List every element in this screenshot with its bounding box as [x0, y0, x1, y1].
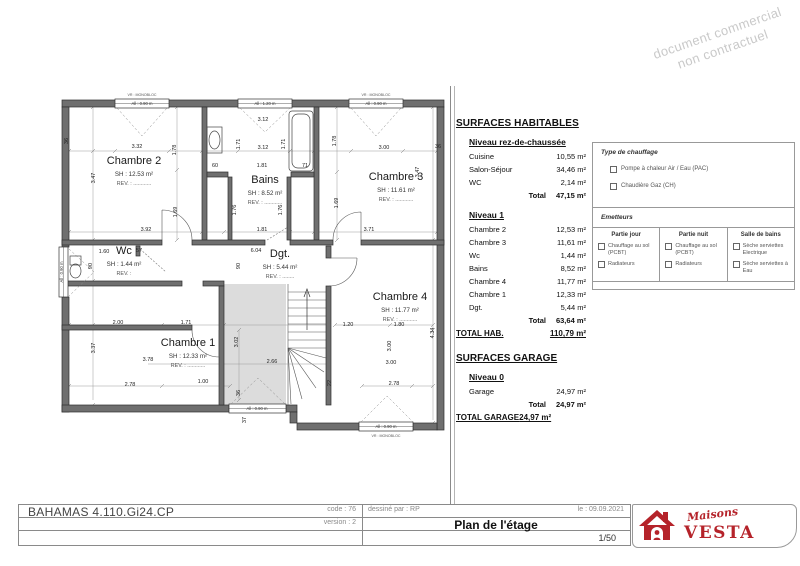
dimension-label: 1.76: [278, 205, 284, 216]
room-area-label: SH : 11.77 m²: [381, 307, 419, 314]
surface-label: Wc: [469, 249, 480, 262]
project-code: code : 76: [250, 506, 356, 513]
dimension-label: 3.71: [364, 227, 375, 233]
room-name-label: Dgt.: [270, 248, 290, 260]
surface-value: 8,52 m²: [561, 262, 586, 275]
dimension-label: 3.92: [141, 227, 152, 233]
emitters-title: Emetteurs: [601, 214, 794, 221]
dimension-label: 2.78: [389, 381, 400, 387]
emitter-option-label: Sèche serviettes Electrique: [743, 243, 791, 256]
bathtub-icon: [289, 111, 313, 171]
surface-value: 1,44 m²: [561, 249, 586, 262]
surface-label: Chambre 4: [469, 275, 506, 288]
dimension-label: 36: [435, 144, 441, 150]
project-version: version : 2: [250, 519, 356, 526]
surface-row: Cuisine10,55 m²: [469, 150, 586, 163]
dimension-label: 1.78: [172, 145, 178, 156]
project-name: BAHAMAS 4.110.Gi24.CP: [28, 505, 174, 519]
checkbox-icon[interactable]: [665, 243, 672, 250]
plan-frame-line-2: [454, 86, 455, 504]
dimension-label: 36: [64, 138, 70, 144]
dimension-label: 1.81: [257, 227, 268, 233]
total-hab-value: 110,79 m²: [550, 327, 586, 341]
garage-heading: Niveau 0: [469, 372, 586, 382]
emitters-column-jour: Partie jour Chauffage au sol (PCBT) Radi…: [593, 228, 659, 281]
brand-name: VESTA: [683, 523, 755, 543]
window-type-label: VR : MONOBLOC: [372, 434, 401, 438]
dimension-label: 57: [136, 248, 142, 254]
emitters-column-bains: Salle de bains Sèche serviettes Electriq…: [727, 228, 794, 281]
surface-row: Chambre 212,53 m²: [469, 223, 586, 236]
garage-total-value: 24,97 m²: [556, 398, 586, 411]
room-name-label: Chambre 2: [107, 155, 161, 167]
drawing-scale: 1/50: [500, 533, 616, 543]
surface-label: WC: [469, 176, 482, 189]
total-label: Total: [529, 189, 546, 202]
room-area-label: SH : 12.53 m²: [115, 171, 153, 178]
room-rev-label: REV. : ........: [266, 274, 295, 280]
surface-value: 5,44 m²: [561, 301, 586, 314]
room-area-label: SH : 12.33 m²: [169, 353, 207, 360]
dimension-label: 1.76: [232, 205, 238, 216]
surface-value: 12,53 m²: [556, 223, 586, 236]
window-allege-label: All : 0.90 m: [247, 406, 268, 411]
checkbox-icon[interactable]: [598, 261, 605, 268]
surface-value: 10,55 m²: [556, 150, 586, 163]
emitters-column-header: Salle de bains: [731, 232, 791, 238]
emitter-option-label: Chauffage au sol (PCBT): [608, 243, 656, 256]
total-garage-label: TOTAL GARAGE: [456, 411, 519, 425]
total-label: Total: [529, 314, 546, 327]
emitter-option: Sèche serviettes Electrique: [733, 243, 791, 256]
window-allege-label: All : 0.90 m: [59, 261, 64, 282]
checkbox-icon[interactable]: [665, 261, 672, 268]
checkbox-icon[interactable]: [598, 243, 605, 250]
surface-row: Bains8,52 m²: [469, 262, 586, 275]
surface-label: Dgt.: [469, 301, 483, 314]
surface-label: Bains: [469, 262, 488, 275]
window-type-label: VR : MONOBLOC: [128, 93, 157, 97]
titleblock-line: [18, 504, 19, 546]
dimension-label: 60: [212, 163, 218, 169]
surface-label: Chambre 2: [469, 223, 506, 236]
checkbox-icon[interactable]: [733, 243, 740, 250]
n1-total-row: Total63,64 m²: [456, 314, 586, 327]
room-area-label: SH : 5.44 m²: [263, 264, 298, 271]
rdc-total-row: Total47,15 m²: [456, 189, 586, 202]
dimension-label: 36: [236, 390, 242, 396]
sheet-title: Plan de l'étage: [362, 518, 630, 532]
dimension-label: 3.37: [91, 343, 97, 354]
rdc-total-value: 47,15 m²: [556, 189, 586, 202]
checkbox-icon[interactable]: [610, 166, 617, 173]
room-name-label: Wc: [116, 245, 132, 257]
heating-option-label: Chaudière Gaz (CH): [621, 183, 676, 190]
dimension-label: 22: [327, 380, 333, 386]
dimension-label: 1.69: [334, 198, 340, 209]
emitters-column-nuit: Partie nuit Chauffage au sol (PCBT) Radi…: [659, 228, 726, 281]
garage-total-row: Total24,97 m²: [456, 398, 586, 411]
window-allege-label: All : 1.20 m: [255, 101, 276, 106]
surface-value: 24,97 m²: [556, 385, 586, 398]
surfaces-title: SURFACES HABITABLES: [456, 118, 586, 129]
room-name-label: Chambre 1: [161, 337, 215, 349]
surface-row: Garage24,97 m²: [469, 385, 586, 398]
surface-row: Chambre 112,33 m²: [469, 288, 586, 301]
plan-frame-line: [450, 86, 451, 504]
emitter-option-label: Sèche serviettes à Eau: [743, 261, 791, 274]
emitter-option: Chauffage au sol (PCBT): [665, 243, 723, 256]
room-rev-label: REV. : ............: [171, 363, 206, 369]
dimension-label: 1.81: [257, 163, 268, 169]
dimension-label: 1.60: [99, 249, 110, 255]
total-hab-label: TOTAL HAB.: [456, 327, 504, 341]
rdc-heading: Niveau rez-de-chaussée: [469, 137, 586, 147]
drawing-date: le : 09.09.2021: [500, 506, 624, 513]
dimension-label: 1.80: [394, 322, 405, 328]
dimension-label: 1.00: [198, 379, 209, 385]
checkbox-icon[interactable]: [733, 261, 740, 268]
emitter-option: Sèche serviettes à Eau: [733, 261, 791, 274]
window-allege-label: All : 0.90 m: [366, 101, 387, 106]
emitter-option-label: Radiateurs: [608, 261, 635, 268]
dimension-label: 3.00: [379, 145, 390, 151]
dimension-label: 1.71: [281, 139, 287, 150]
total-hab-row: TOTAL HAB.110,79 m²: [456, 327, 586, 341]
room-rev-label: REV. : ............: [379, 197, 414, 203]
emitter-option-label: Chauffage au sol (PCBT): [675, 243, 723, 256]
emitters-column-header: Partie jour: [596, 232, 656, 238]
dimension-label: 3.47: [91, 173, 97, 184]
window-allege-label: All : 0.90 m: [376, 424, 397, 429]
heating-option: Pompe à chaleur Air / Eau (PAC): [610, 166, 794, 173]
dimension-label: 3.12: [258, 145, 269, 151]
dimension-label: 1.71: [236, 139, 242, 150]
n1-total-value: 63,64 m²: [556, 314, 586, 327]
dimension-label: 3.78: [143, 357, 154, 363]
dimension-label: 90: [88, 263, 94, 269]
room-area-label: SH : 1.44 m²: [107, 261, 142, 268]
window-allege-label: All : 0.90 m: [132, 101, 153, 106]
surface-value: 11,61 m²: [557, 236, 586, 249]
dimension-label: 1.78: [332, 136, 338, 147]
titleblock-line: [630, 504, 631, 546]
dimension-label: 2.66: [267, 359, 278, 365]
dimension-label: 1.20: [343, 322, 354, 328]
surface-row: Dgt.5,44 m²: [469, 301, 586, 314]
dimension-label: 3.47: [415, 167, 421, 178]
surface-value: 12,33 m²: [556, 288, 586, 301]
emitter-option: Radiateurs: [598, 261, 656, 268]
titleblock-line: [18, 545, 630, 546]
emitters-column-header: Partie nuit: [663, 232, 723, 238]
emitters-section: Emetteurs Partie jour Chauffage au sol (…: [593, 207, 794, 289]
room-name-label: Bains: [251, 174, 279, 186]
surface-label: Salon-Séjour: [469, 163, 512, 176]
heating-option-label: Pompe à chaleur Air / Eau (PAC): [621, 166, 708, 173]
room-rev-label: REV. :: [116, 271, 131, 277]
emitters-table: Partie jour Chauffage au sol (PCBT) Radi…: [593, 227, 794, 282]
dimension-label: 90: [236, 263, 242, 269]
garage-title: SURFACES GARAGE: [456, 353, 586, 364]
surface-row: Chambre 411,77 m²: [469, 275, 586, 288]
surface-label: Chambre 3: [469, 236, 506, 249]
dimension-label: 3.00: [387, 341, 393, 352]
surface-row: WC2,14 m²: [469, 176, 586, 189]
brand-script: Maisons: [685, 506, 738, 524]
dimension-label: 3.12: [258, 117, 269, 123]
n1-heading: Niveau 1: [469, 210, 586, 220]
surface-label: Cuisine: [469, 150, 494, 163]
heating-legend: Type de chauffage Pompe à chaleur Air / …: [592, 142, 795, 290]
surface-label: Chambre 1: [469, 288, 506, 301]
heating-option: Chaudière Gaz (CH): [610, 183, 794, 190]
surface-row: Chambre 311,61 m²: [469, 236, 586, 249]
dimension-label: 3.32: [132, 144, 143, 150]
surfaces-panel: SURFACES HABITABLES Niveau rez-de-chauss…: [456, 118, 586, 425]
vesta-logo: Maisons VESTA: [632, 504, 797, 548]
dimension-label: 2.00: [113, 320, 124, 326]
dimension-label: 2.78: [125, 382, 136, 388]
total-garage-value: 24,97 m²: [519, 411, 551, 425]
room-area-label: SH : 11.61 m²: [377, 187, 415, 194]
surface-value: 34,46 m²: [556, 163, 586, 176]
checkbox-icon[interactable]: [610, 183, 617, 190]
dimension-label: 37: [242, 417, 248, 423]
emitter-option: Chauffage au sol (PCBT): [598, 243, 656, 256]
room-rev-label: REV. : ............: [117, 181, 152, 187]
surface-value: 11,77 m²: [557, 275, 586, 288]
drawn-by: dessiné par : RP: [368, 506, 420, 513]
dimension-label: 1.71: [181, 320, 192, 326]
heating-type-section: Type de chauffage Pompe à chaleur Air / …: [593, 143, 794, 206]
heating-type-title: Type de chauffage: [601, 149, 794, 156]
dimension-label: 3.00: [386, 360, 397, 366]
dimension-label: 4.34: [430, 328, 436, 339]
emitter-option-label: Radiateurs: [675, 261, 702, 268]
dimension-label: 3.02: [234, 337, 240, 348]
dimension-label: 71: [302, 163, 308, 169]
surface-row: Wc1,44 m²: [469, 249, 586, 262]
room-name-label: Chambre 4: [373, 291, 427, 303]
window-type-label: VR : MONOBLOC: [362, 93, 391, 97]
dimension-label: 1.69: [173, 207, 179, 218]
vesta-house-icon: [639, 510, 675, 540]
emitter-option: Radiateurs: [665, 261, 723, 268]
surface-value: 2,14 m²: [561, 176, 586, 189]
total-garage-row: TOTAL GARAGE24,97 m²: [456, 411, 586, 425]
total-label: Total: [529, 398, 546, 411]
room-area-label: SH : 8.52 m²: [248, 190, 283, 197]
surface-row: Salon-Séjour34,46 m²: [469, 163, 586, 176]
surface-label: Garage: [469, 385, 494, 398]
dimension-label: 6.04: [251, 248, 262, 254]
